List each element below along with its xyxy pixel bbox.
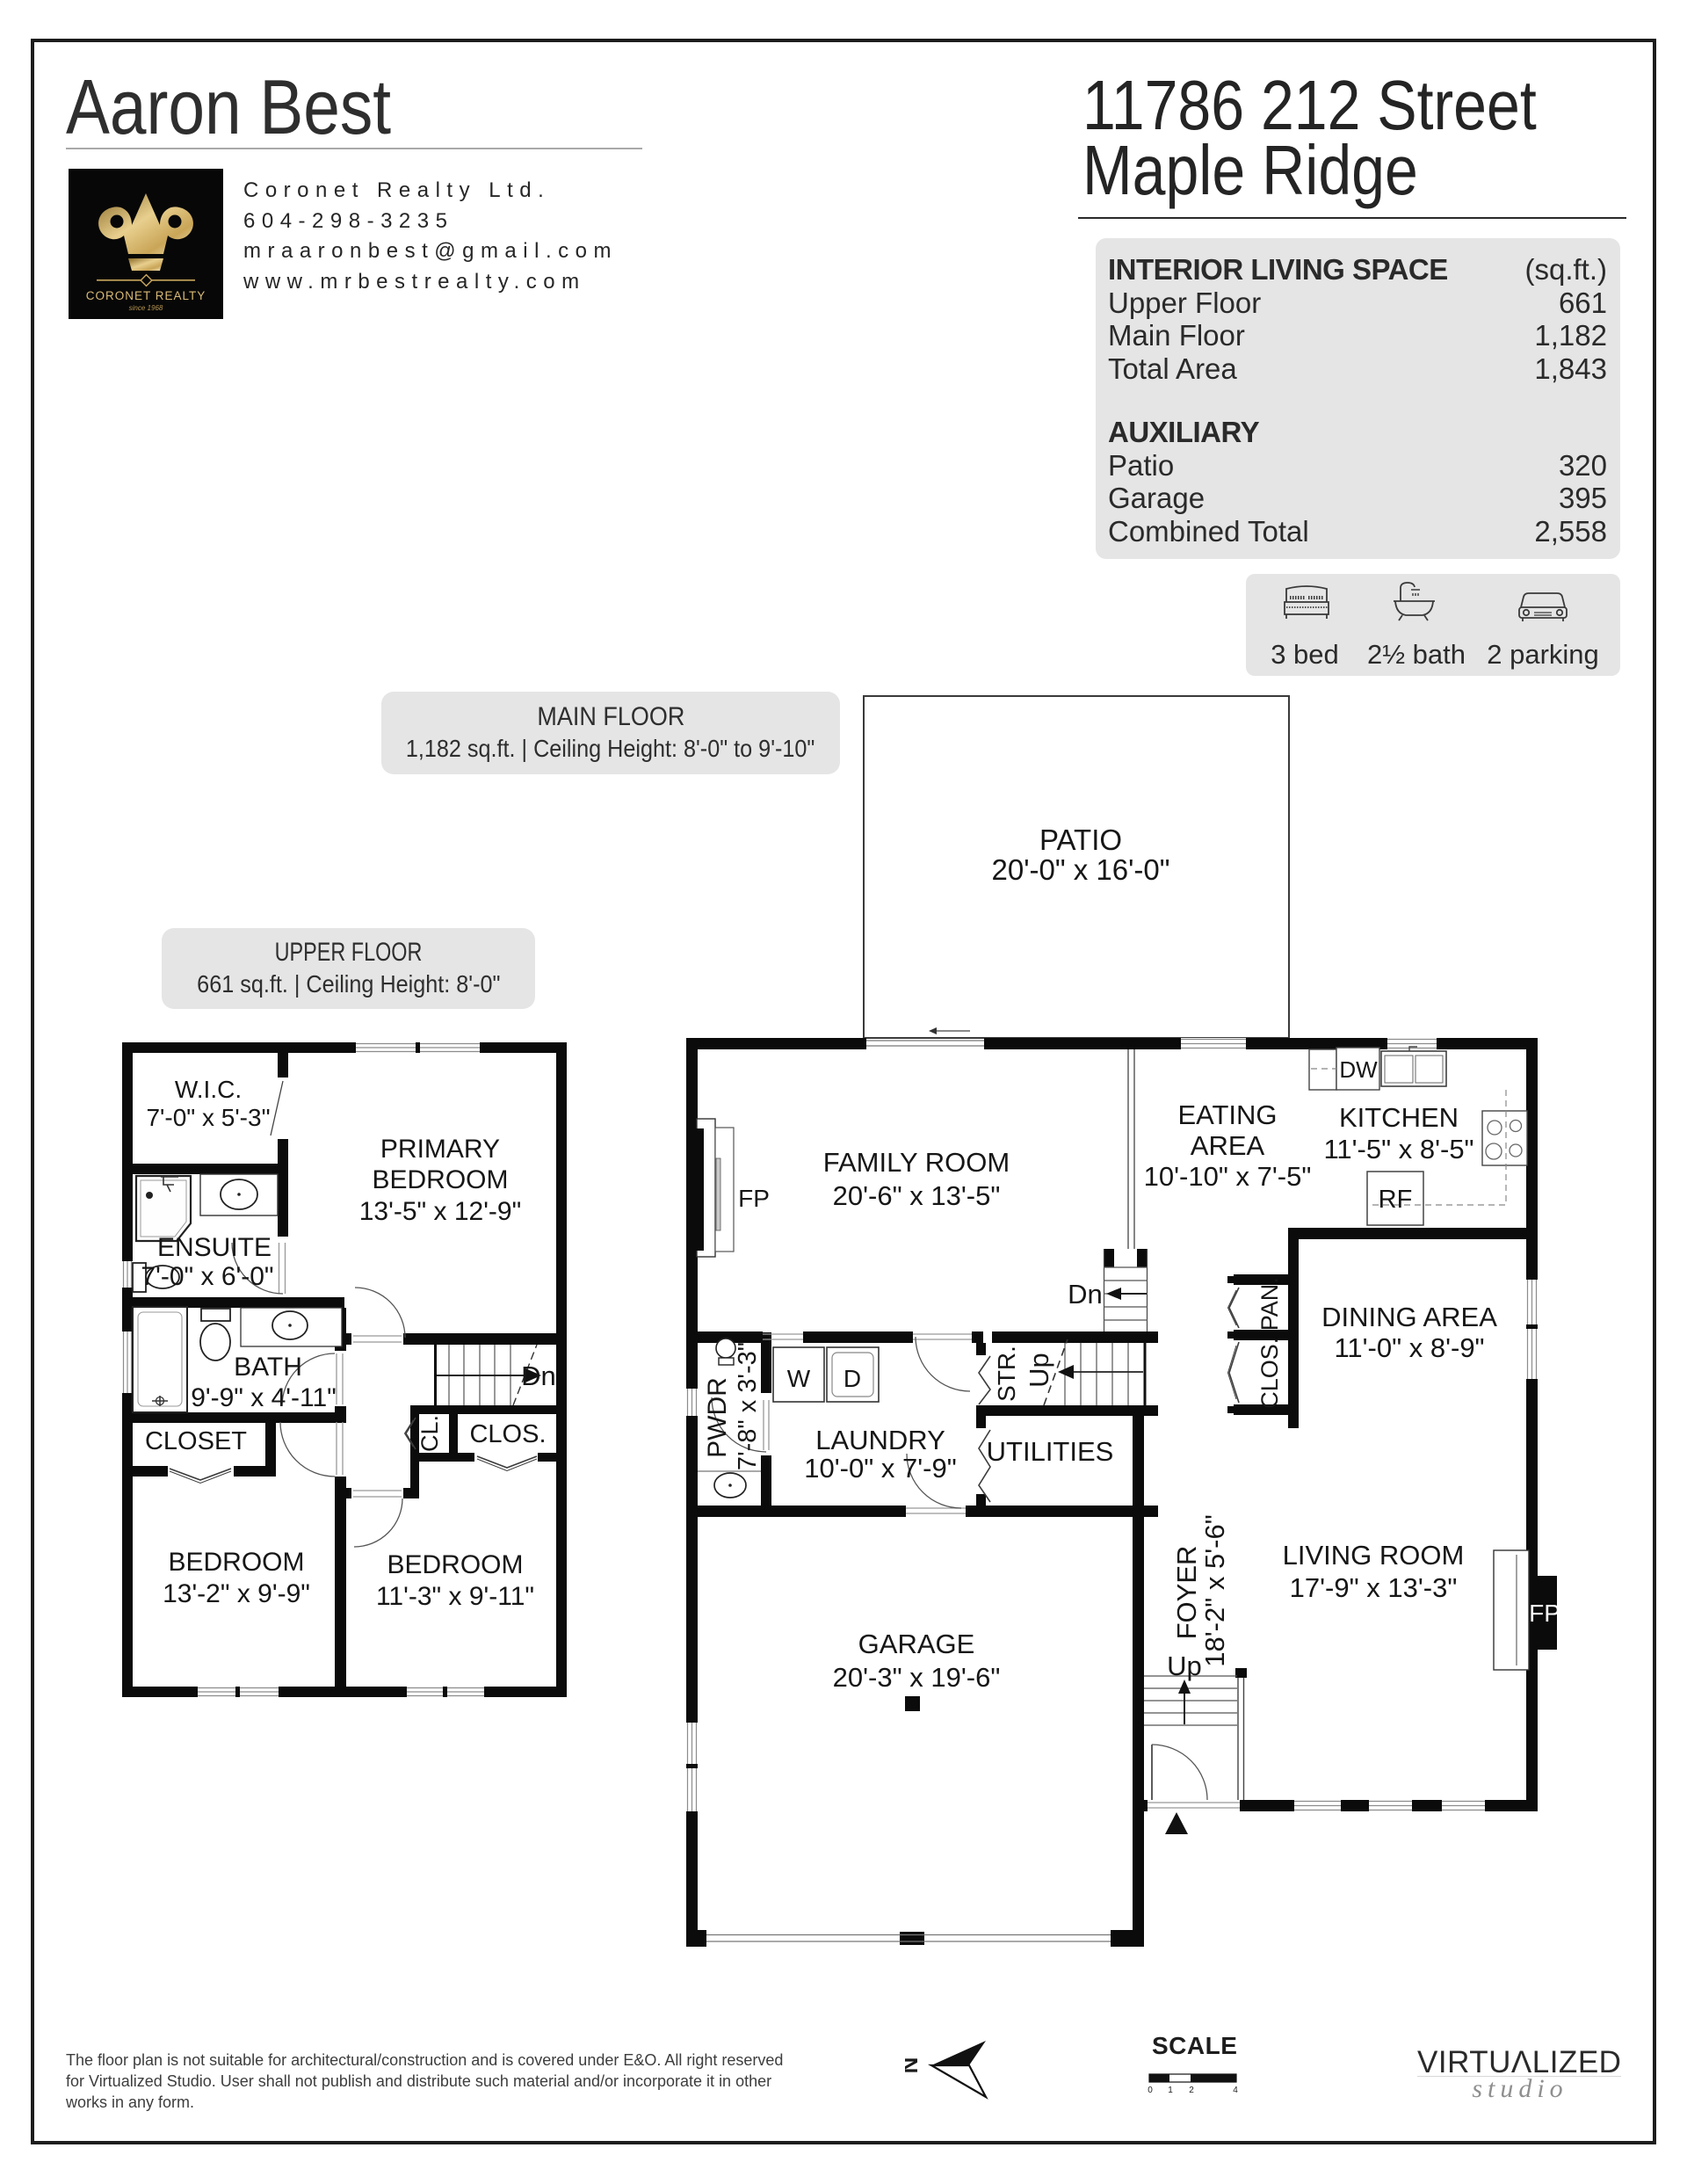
- svg-text:DINING AREA: DINING AREA: [1321, 1302, 1497, 1332]
- svg-text:ENSUITE: ENSUITE: [157, 1233, 272, 1262]
- svg-text:3 bed: 3 bed: [1271, 639, 1339, 670]
- svg-text:18'-2" x 5'-6": 18'-2" x 5'-6": [1199, 1514, 1230, 1666]
- svg-text:W: W: [787, 1365, 811, 1392]
- svg-text:since 1968: since 1968: [129, 304, 163, 312]
- svg-text:PRIMARY: PRIMARY: [380, 1135, 500, 1164]
- svg-text:CLOS. PAN.: CLOS. PAN.: [1256, 1277, 1283, 1409]
- svg-text:2 parking: 2 parking: [1487, 639, 1599, 670]
- svg-text:17'-9" x 13'-3": 17'-9" x 13'-3": [1290, 1572, 1458, 1603]
- svg-text:7'-0" x 5'-3": 7'-0" x 5'-3": [146, 1104, 270, 1131]
- svg-text:1: 1: [1168, 2086, 1173, 2095]
- svg-text:FP: FP: [1529, 1600, 1560, 1627]
- svg-text:BEDROOM: BEDROOM: [168, 1548, 304, 1577]
- svg-text:LAUNDRY: LAUNDRY: [815, 1425, 945, 1455]
- svg-text:BEDROOM: BEDROOM: [372, 1165, 508, 1194]
- svg-text:UTILITIES: UTILITIES: [987, 1436, 1114, 1467]
- svg-text:N: N: [905, 2057, 923, 2074]
- svg-text:GARAGE: GARAGE: [858, 1629, 975, 1659]
- svg-text:0: 0: [1148, 2086, 1153, 2095]
- svg-text:13'-5" x 12'-9": 13'-5" x 12'-9": [359, 1197, 522, 1226]
- svg-text:13'-2" x 9'-9": 13'-2" x 9'-9": [163, 1579, 310, 1608]
- svg-text:2½ bath: 2½ bath: [1367, 639, 1466, 670]
- svg-text:D: D: [843, 1365, 861, 1392]
- svg-text:9'-9" x 4'-11": 9'-9" x 4'-11": [191, 1383, 337, 1412]
- svg-text:2: 2: [1189, 2086, 1194, 2095]
- svg-text:Dn: Dn: [1068, 1279, 1103, 1310]
- svg-text:RF: RF: [1379, 1186, 1413, 1214]
- svg-text:11'-3" x 9'-11": 11'-3" x 9'-11": [376, 1582, 534, 1611]
- svg-text:7'-0" x 6'-0": 7'-0" x 6'-0": [141, 1262, 273, 1291]
- svg-text:Dn: Dn: [521, 1360, 556, 1391]
- svg-text:KITCHEN: KITCHEN: [1339, 1102, 1459, 1133]
- svg-text:CLOS.: CLOS.: [469, 1420, 546, 1448]
- svg-text:EATING: EATING: [1177, 1099, 1277, 1130]
- svg-text:4: 4: [1233, 2086, 1238, 2095]
- svg-text:CLOSET: CLOSET: [145, 1427, 247, 1455]
- svg-text:20'-0" x 16'-0": 20'-0" x 16'-0": [992, 853, 1170, 886]
- svg-text:STR.: STR.: [993, 1346, 1020, 1402]
- svg-text:DW: DW: [1339, 1056, 1378, 1083]
- svg-text:20'-6" x 13'-5": 20'-6" x 13'-5": [833, 1180, 1001, 1211]
- svg-text:PWDR: PWDR: [703, 1377, 732, 1458]
- svg-text:Up: Up: [1167, 1651, 1202, 1681]
- svg-text:AREA: AREA: [1191, 1130, 1265, 1161]
- svg-text:Up: Up: [1024, 1353, 1054, 1388]
- svg-text:CORONET REALTY: CORONET REALTY: [86, 289, 206, 302]
- svg-text:LIVING ROOM: LIVING ROOM: [1283, 1540, 1465, 1571]
- svg-text:CL.: CL.: [416, 1415, 443, 1452]
- svg-text:BATH: BATH: [234, 1353, 302, 1382]
- svg-text:11'-0" x 8'-9": 11'-0" x 8'-9": [1334, 1332, 1484, 1363]
- svg-text:FAMILY ROOM: FAMILY ROOM: [823, 1147, 1010, 1178]
- svg-text:7'-8" x 3'-3": 7'-8" x 3'-3": [734, 1342, 762, 1470]
- svg-text:BEDROOM: BEDROOM: [387, 1550, 523, 1579]
- svg-text:FOYER: FOYER: [1171, 1546, 1202, 1640]
- svg-text:11'-5" x 8'-5": 11'-5" x 8'-5": [1323, 1134, 1473, 1165]
- svg-text:10'-0" x 7'-9": 10'-0" x 7'-9": [804, 1453, 956, 1484]
- svg-text:20'-3" x 19'-6": 20'-3" x 19'-6": [833, 1662, 1001, 1693]
- svg-text:FP: FP: [738, 1185, 770, 1212]
- svg-text:PATIO: PATIO: [1039, 824, 1122, 856]
- svg-text:W.I.C.: W.I.C.: [175, 1076, 242, 1103]
- svg-text:10'-10" x 7'-5": 10'-10" x 7'-5": [1144, 1161, 1312, 1192]
